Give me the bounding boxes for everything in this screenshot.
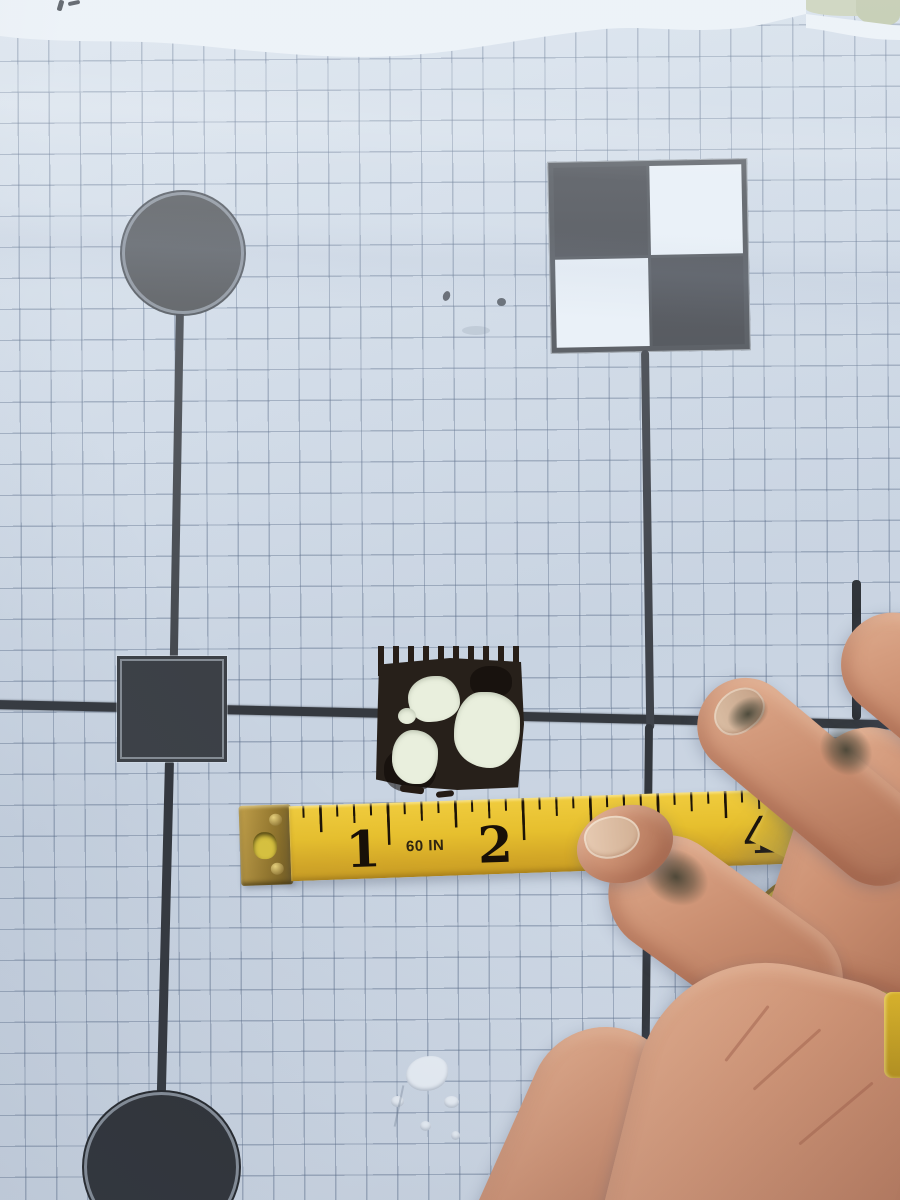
pen-stroke — [57, 0, 65, 11]
checker-cell-light — [649, 164, 743, 254]
torn-paper-spot — [420, 1121, 431, 1131]
target-circle-top-left — [122, 192, 244, 314]
checkerboard-target-top — [547, 158, 751, 354]
rivet — [271, 862, 284, 874]
checker-cell-dark — [553, 166, 647, 256]
pen-mark — [56, 0, 82, 12]
bullet-hole — [454, 692, 520, 768]
checker-cell-light — [555, 258, 649, 348]
tape-length-label: 60 IN — [406, 837, 445, 855]
checker-cell-dark — [651, 256, 745, 346]
tape-inch-number: 1 — [345, 823, 382, 876]
tape-tip-slot — [253, 832, 278, 860]
torn-paper-spot — [451, 1131, 460, 1140]
rivet — [269, 814, 282, 826]
paper-edge — [0, 0, 900, 70]
torn-paper-spot — [444, 1096, 459, 1108]
tape-inch-number: 2 — [477, 819, 514, 872]
target-photo: 1 2 3 4 60 IN — [0, 0, 900, 1200]
tape-roll-edge — [884, 992, 900, 1078]
marker-blackout-square — [370, 644, 530, 800]
bullet-mark — [497, 298, 506, 306]
paper-smudge — [462, 326, 490, 335]
pen-stroke — [68, 0, 81, 6]
bullet-hole — [392, 730, 438, 784]
tape-brass-tip — [239, 804, 294, 886]
bullet-hole — [398, 708, 416, 724]
target-square-crosshair — [117, 656, 227, 762]
